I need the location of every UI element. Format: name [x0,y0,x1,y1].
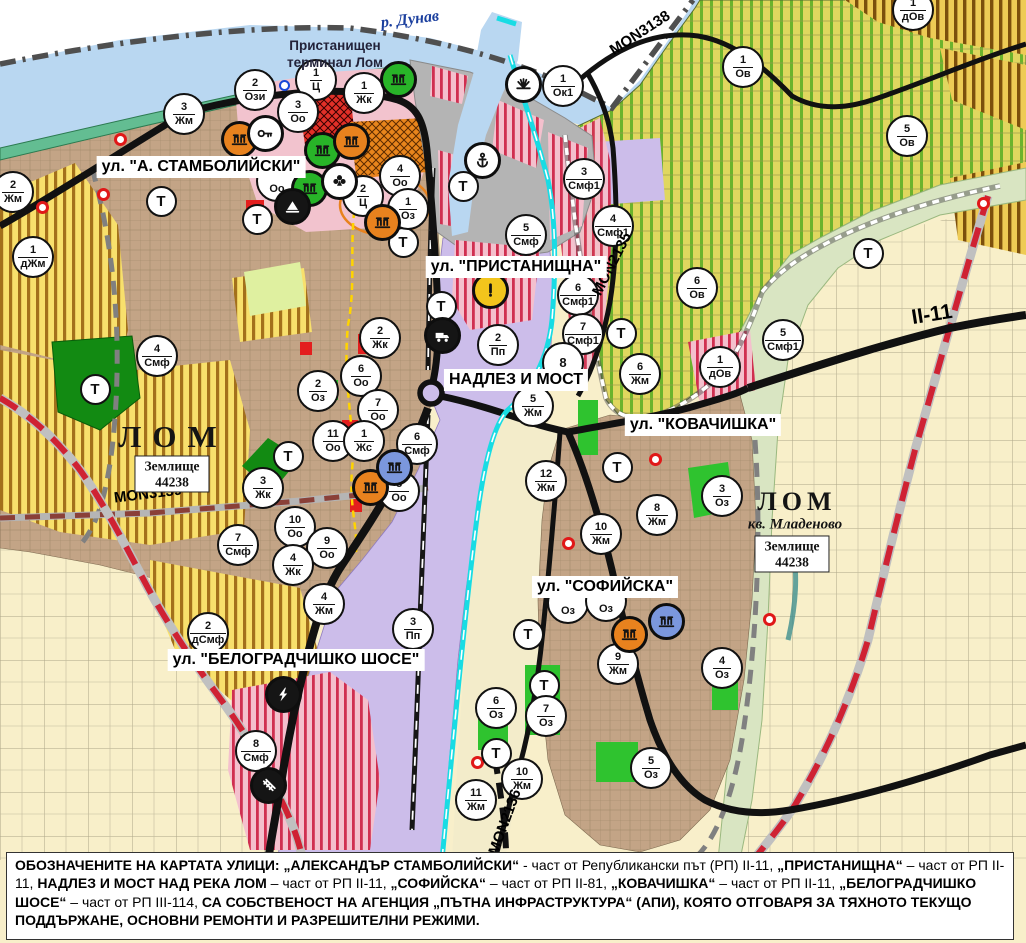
zone-marker: 3Оз [701,475,743,517]
poi-dot [279,80,290,91]
railway-icon [250,767,287,804]
poi-dot [36,201,49,214]
zone-marker: 3Жм [163,93,205,135]
poi-dot [562,537,575,550]
zone-marker: 5Смф1 [762,319,804,361]
zone-marker: 3Пп [392,608,434,650]
zone-marker: 4Жм [303,583,345,625]
zone-marker: 6Оз [475,687,517,729]
street-label: ул. "ПРИСТАНИЩНА" [426,256,607,278]
monument-icon [611,616,648,653]
zone-marker: 5Жм [512,385,554,427]
transport-marker: Т [602,452,633,483]
street-label: ул. "КОВАЧИШКА" [625,414,781,436]
zone-marker: 4Оз [701,647,743,689]
rays-icon [505,66,542,103]
zone-marker: 5Ов [886,115,928,157]
streets-ownership-notice: ОБОЗНАЧЕНИТЕ НА КАРТАТА УЛИЦИ: „АЛЕКСАНД… [6,852,1014,940]
zoning-map-sheet: 2Ози1Ц3Оо1Жк1Ок13Жм2Жм1дЖм4Оо2Ц1Оз4Смф2О… [0,0,1026,943]
poi-dot [763,613,776,626]
road-number-label: MON3138 [607,7,674,58]
city-label-lom-east: ЛОМ [757,487,836,517]
peak-icon [274,188,311,225]
zone-marker: 3Жк [242,467,284,509]
transport-marker: Т [273,441,304,472]
truck-icon [424,317,461,354]
monument-icon [648,603,685,640]
district-label-mladenovo: кв. Младеново [748,517,842,534]
zone-marker: 5Оз [630,747,672,789]
zone-marker: 1дЖм [12,236,54,278]
zone-marker: 5Смф [505,214,547,256]
notice-segment: – част от РП II-11, [715,875,839,891]
road-number-label: II-11 [910,300,954,330]
land-unit-title: Землище [764,538,819,553]
transport-marker: Т [513,619,544,650]
transport-marker: Т [80,374,111,405]
notice-segment: „ПРИСТАНИЩНА“ [777,857,903,873]
zone-marker: 2Жк [359,317,401,359]
zone-marker: 6Жм [619,353,661,395]
port-terminal-label: Пристанищен терминал Лом [287,38,383,72]
notice-segment: „КОВАЧИШКА“ [611,875,716,891]
zone-marker: 7Оз [525,695,567,737]
city-label-lom-west: ЛОМ [118,419,227,455]
poi-dot [114,133,127,146]
zone-marker: 1Ок1 [542,65,584,107]
zone-marker: 3Оо [277,91,319,133]
zone-marker: 1Жк [343,72,385,114]
zone-marker: 6Ов [676,267,718,309]
street-label: ул. "А. СТАМБОЛИЙСКИ" [97,156,306,178]
monument-icon [380,61,417,98]
street-label: ул. "БЕЛОГРАДЧИШКО ШОСЕ" [168,649,425,671]
notice-segment: – част от РП II-11, [267,875,391,891]
poi-dot [977,197,990,210]
land-unit-title: Землище [144,458,199,473]
notice-segment: НАДЛЕЗ И МОСТ НАД РЕКА ЛОМ [37,875,266,891]
zone-marker: 2дСмф [187,612,229,654]
notice-segment: „СОФИЙСКА“ [391,875,487,891]
port-terminal-line2: терминал Лом [287,55,383,70]
transport-marker: Т [146,186,177,217]
monument-icon [364,204,401,241]
zone-marker: 2Оз [297,370,339,412]
key-icon [247,115,284,152]
zone-marker: 2Пп [477,324,519,366]
lightning-icon [265,676,302,713]
zone-marker: 1дОв [892,0,934,31]
transport-marker: Т [606,318,637,349]
anchor-icon [464,142,501,179]
zone-marker: 2Ози [234,69,276,111]
notice-segment: ОБОЗНАЧЕНИТЕ НА КАРТАТА УЛИЦИ: „АЛЕКСАНД… [15,857,519,873]
zone-marker: 4Жк [272,544,314,586]
zone-marker: 11Жм [455,779,497,821]
transport-marker: Т [853,238,884,269]
poi-dot [649,453,662,466]
zone-marker: 8Смф [235,730,277,772]
clover-icon [321,163,358,200]
monument-icon [333,123,370,160]
notice-segment: - част от Републикански път (РП) II-11, [519,857,777,873]
zone-marker: 3Смф1 [563,158,605,200]
land-unit-box-east: Землище 44238 [754,535,829,572]
zone-marker: 10Жм [580,513,622,555]
transport-marker: Т [242,204,273,235]
zone-marker: 7Смф [217,524,259,566]
street-label: ул. "СОФИЙСКА" [532,576,678,598]
land-unit-box-west: Землище 44238 [134,455,209,492]
zone-marker: 2Жм [0,171,34,213]
notice-segment: – част от РП II-81, [486,875,611,891]
street-label: НАДЛЕЗ И МОСТ [444,369,588,391]
monument-icon [376,449,413,486]
zone-marker: 8Жм [636,494,678,536]
zone-marker: 4Смф [136,335,178,377]
poi-dot [97,188,110,201]
zone-marker: 1дОв [699,346,741,388]
land-unit-number: 44238 [155,474,189,489]
zone-marker: 12Жм [525,460,567,502]
land-unit-number: 44238 [775,554,809,569]
notice-segment: – част от РП III-114, [66,894,201,910]
port-terminal-line1: Пристанищен [289,38,380,53]
zone-marker: 1Ов [722,46,764,88]
